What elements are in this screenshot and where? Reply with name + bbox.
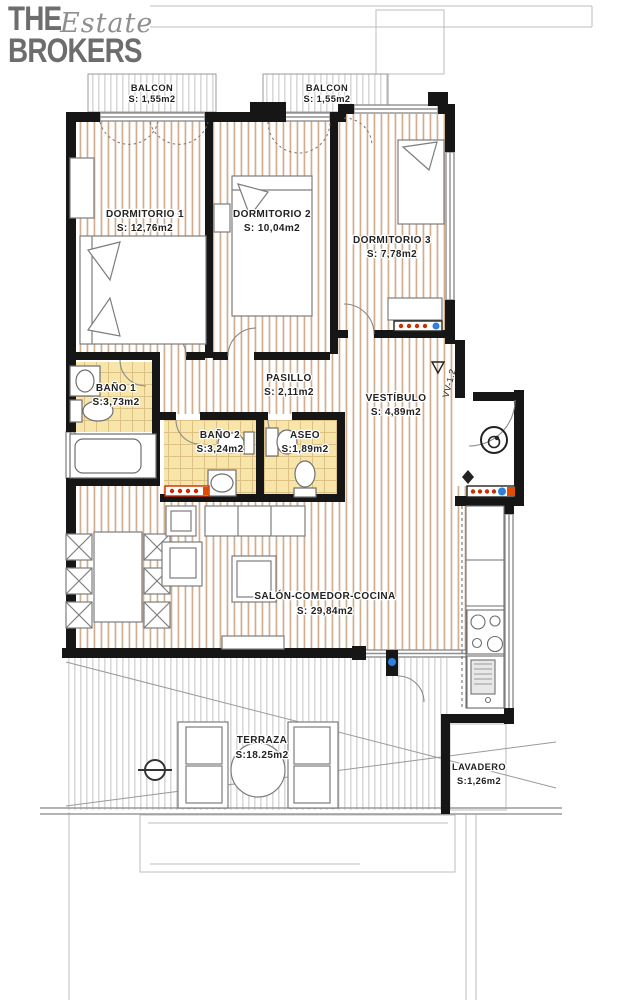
dorm1-bed <box>80 236 206 344</box>
label-vestibulo-area: S: 4,89m2 <box>371 407 421 418</box>
window-dorm3-right <box>446 152 454 300</box>
dorm2-bed <box>232 176 312 316</box>
label-bano2-name: BAÑO 2 <box>200 428 240 441</box>
armchair <box>162 542 202 586</box>
window-dorm3-top <box>354 105 438 113</box>
label-balcon-1-name: BALCON <box>131 83 173 93</box>
aseo-toilet <box>294 461 316 497</box>
label-balcon-1-area: S: 1,55m2 <box>128 94 175 104</box>
label-pasillo-name: PASILLO <box>266 373 311 384</box>
terrace-sofa-right <box>288 722 338 808</box>
label-dorm1-name: DORMITORIO 1 <box>106 209 184 220</box>
label-bano1-area: S:3,73m2 <box>92 397 139 408</box>
terrace-door-blue-marker <box>388 658 396 666</box>
label-terraza-area: S:18.25m2 <box>235 750 288 761</box>
terrace-sofa-left <box>178 722 228 808</box>
balcony-1-floor <box>88 74 216 112</box>
entry-peephole-symbol <box>481 427 507 453</box>
floor-plan-drawing: BALCON S: 1,55m2 BALCON S: 1,55m2 DORMIT… <box>0 0 618 1000</box>
radiator-salon <box>165 486 209 496</box>
entry-diamond-marker <box>462 470 474 484</box>
dorm1-wardrobe <box>70 158 94 218</box>
kitchen-hob <box>467 610 504 654</box>
label-vestibulo-name: VESTÍBULO <box>366 391 427 404</box>
dorm2-nightstand <box>214 204 230 232</box>
kitchen-sink <box>467 656 504 708</box>
label-lavadero-area: S:1,26m2 <box>457 776 501 786</box>
pasillo-floor <box>160 352 345 414</box>
label-bano1-name: BAÑO 1 <box>96 381 136 394</box>
side-table <box>166 506 196 536</box>
bano2-sink <box>208 470 236 496</box>
tv-bench <box>222 636 284 649</box>
label-dorm2-name: DORMITORIO 2 <box>233 209 311 220</box>
entry-door-leaf <box>473 392 515 401</box>
label-dorm3-name: DORMITORIO 3 <box>353 235 431 246</box>
brand-word-brokers: BROKERS <box>8 34 142 68</box>
dorm3-desk <box>388 298 442 320</box>
window-kitchen-right <box>505 514 513 710</box>
door-entry <box>469 400 515 446</box>
label-salon-name: SALÓN-COMEDOR-COCINA <box>254 589 395 602</box>
label-bano2-area: S:3,24m2 <box>196 444 243 455</box>
label-dorm3-area: S: 7,78m2 <box>367 249 417 260</box>
label-aseo-area: S:1,89m2 <box>281 444 328 455</box>
window-dorm1-top <box>100 113 205 121</box>
label-balcon-2-area: S: 1,55m2 <box>303 94 350 104</box>
label-dorm2-area: S: 10,04m2 <box>244 223 300 234</box>
bano1-bathtub <box>70 434 156 478</box>
vestibulo-floor <box>338 332 455 506</box>
kitchen <box>462 506 504 708</box>
dining-table <box>94 532 142 622</box>
radiator-entry <box>467 486 515 497</box>
label-balcon-2-name: BALCON <box>306 83 348 93</box>
label-aseo-name: ASEO <box>290 430 320 441</box>
label-lavadero-name: LAVADERO <box>452 762 506 772</box>
label-pasillo-area: S: 2,11m2 <box>264 387 314 398</box>
sofa <box>205 506 305 536</box>
radiator-dorm3 <box>394 321 442 331</box>
brand-logo: THE Estate BROKERS <box>8 2 171 68</box>
dorm3-bed <box>398 140 444 224</box>
label-salon-area: S: 29,84m2 <box>297 606 353 617</box>
label-dorm1-area: S: 12,76m2 <box>117 223 173 234</box>
floor-plan-page: THE Estate BROKERS <box>0 0 618 1000</box>
label-terraza-name: TERRAZA <box>237 735 288 746</box>
